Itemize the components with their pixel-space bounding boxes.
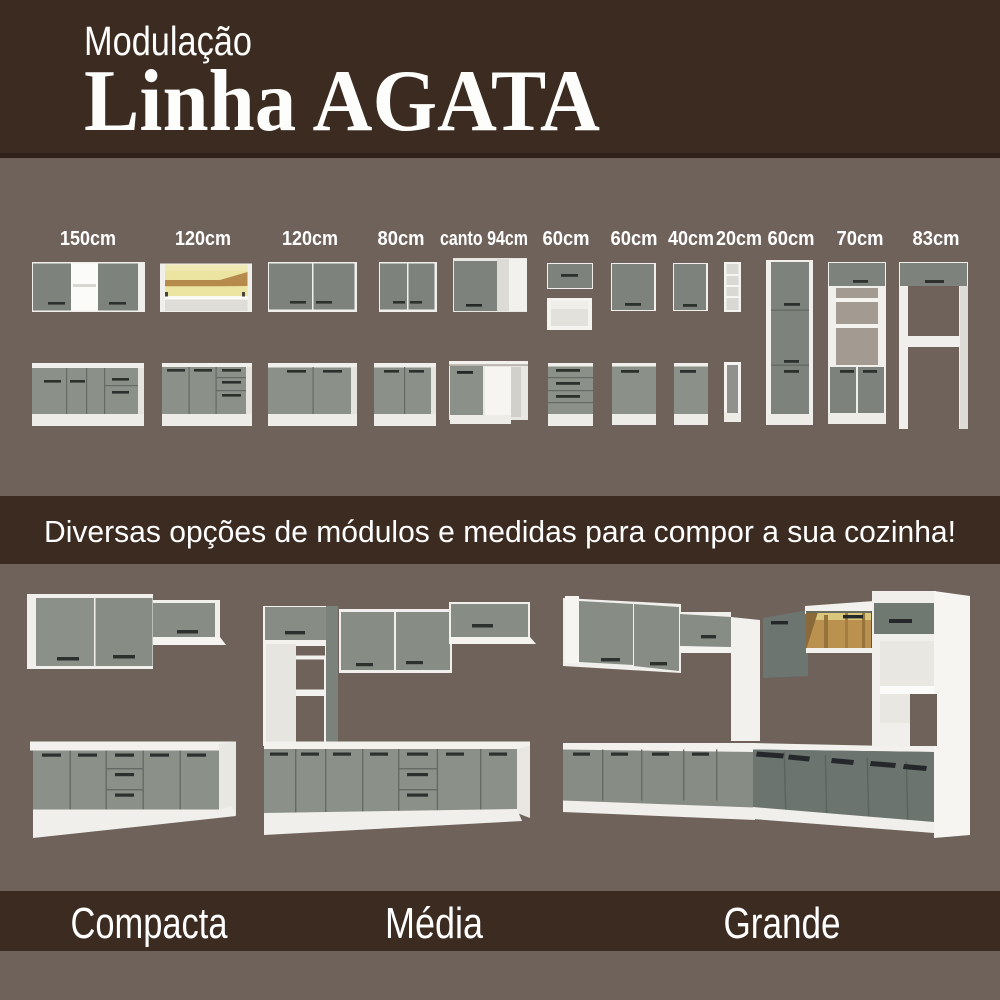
svg-text:20cm: 20cm xyxy=(716,228,762,250)
svg-text:80cm: 80cm xyxy=(378,228,425,250)
svg-text:60cm: 60cm xyxy=(768,228,815,250)
svg-text:40cm: 40cm xyxy=(668,228,714,250)
svg-text:Compacta: Compacta xyxy=(71,899,228,948)
svg-text:150cm: 150cm xyxy=(60,228,116,250)
svg-text:Linha AGATA: Linha AGATA xyxy=(84,53,600,150)
svg-text:canto 94cm: canto 94cm xyxy=(440,228,528,250)
svg-text:70cm: 70cm xyxy=(837,228,884,250)
svg-text:120cm: 120cm xyxy=(175,228,231,250)
svg-text:120cm: 120cm xyxy=(282,228,338,250)
svg-text:60cm: 60cm xyxy=(611,228,658,250)
svg-text:Média: Média xyxy=(385,899,483,948)
svg-text:83cm: 83cm xyxy=(913,228,960,250)
svg-text:60cm: 60cm xyxy=(543,228,590,250)
svg-text:Diversas opções de módulos e m: Diversas opções de módulos e medidas par… xyxy=(44,514,956,549)
svg-text:Grande: Grande xyxy=(724,899,841,948)
